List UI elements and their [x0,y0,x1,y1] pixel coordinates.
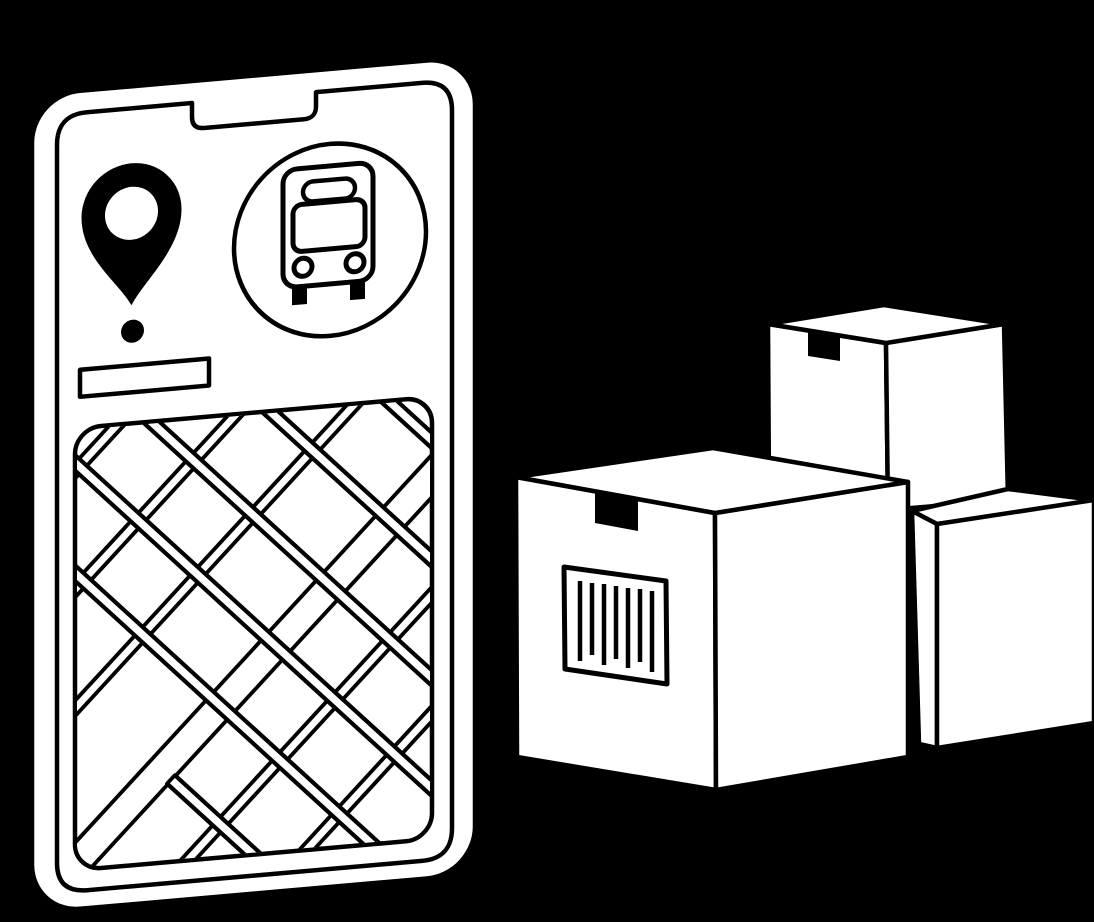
illustration-canvas [0,0,1094,922]
small-box-tape-notch [808,330,840,361]
large-box-right-face [715,482,908,790]
package-box-right [912,489,1094,748]
bus-right-headlight [346,253,364,273]
bus-left-headlight [294,258,312,278]
bus-icon [283,162,373,306]
bus-windshield [293,199,365,252]
delivery-tracking-illustration [0,0,1094,922]
barcode-label [564,567,667,684]
package-box-large [516,448,908,790]
right-box-front-face [937,500,1094,748]
